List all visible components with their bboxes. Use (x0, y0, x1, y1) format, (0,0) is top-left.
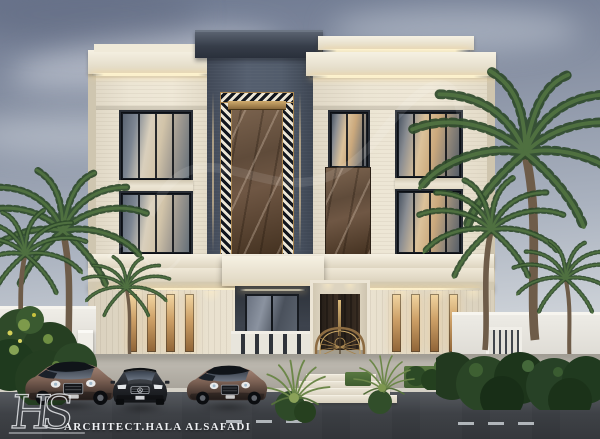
lane-marking-right (458, 422, 548, 425)
car-bronze-3 (184, 358, 270, 408)
entrance-plants (250, 318, 420, 418)
architectural-render-scene: HS ARCHITECT.HALA ALSAFADI (0, 0, 600, 439)
car-graphite-2 (106, 358, 174, 408)
credit-text: ARCHITECT.HALA ALSAFADI (64, 421, 251, 433)
hedge-right (436, 330, 600, 410)
